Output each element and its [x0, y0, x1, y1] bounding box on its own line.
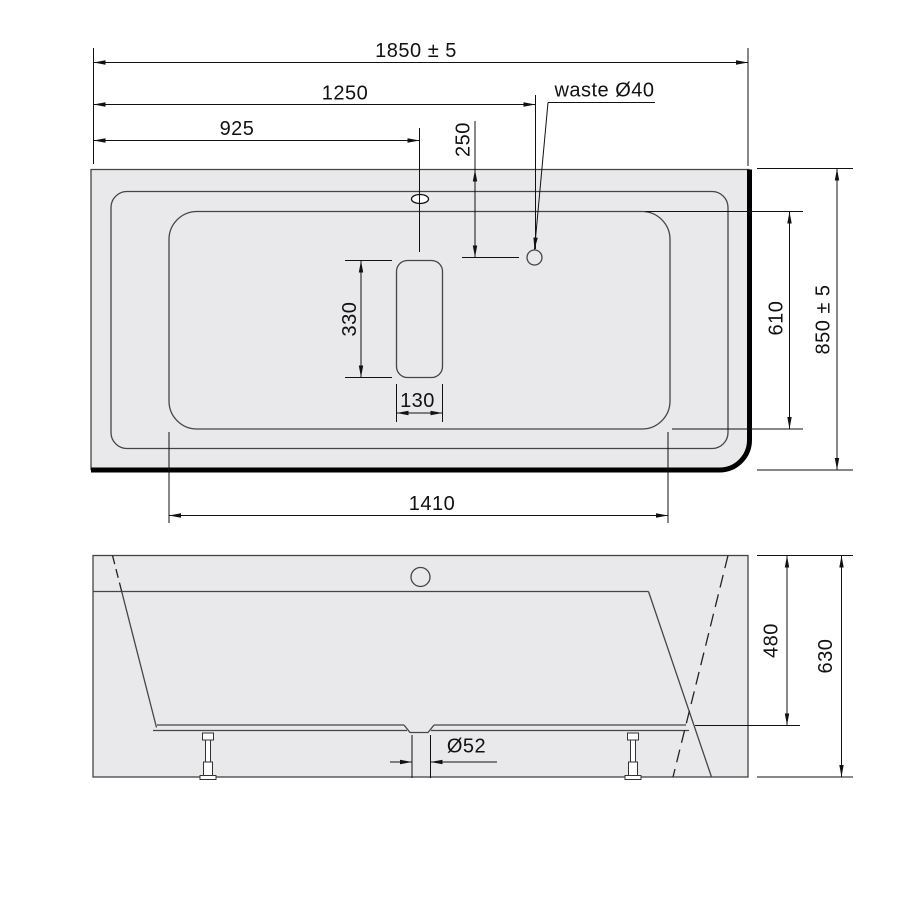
dim-text: 925 [220, 118, 255, 140]
front-outline [93, 556, 748, 778]
foot-stem [631, 740, 636, 762]
dim-text: 130 [400, 390, 435, 412]
dim-overall-height: 630 [757, 556, 853, 778]
dim-text: 610 [766, 301, 788, 336]
tub-fill [91, 170, 750, 471]
waste-label: waste Ø40 [553, 80, 654, 102]
foot-base-plate [625, 776, 641, 780]
dim-text: Ø52 [447, 736, 486, 758]
foot-stem [206, 740, 211, 762]
dim-text: 330 [339, 302, 361, 337]
front-body [93, 556, 748, 780]
drawing-canvas: 1850 ± 5 1250 925 250 waste Ø40 [0, 0, 900, 900]
drawing-page: 1850 ± 5 1250 925 250 waste Ø40 [0, 0, 900, 900]
dim-text: 630 [815, 639, 837, 674]
dim-text: 850 ± 5 [813, 284, 835, 354]
top-view: 1850 ± 5 1250 925 250 waste Ø40 [91, 40, 853, 523]
front-view: Ø52 480 630 [93, 556, 853, 780]
foot-mount-block [203, 733, 214, 740]
dim-text: 1410 [409, 493, 456, 515]
foot-lower-block [629, 762, 638, 776]
tub-body [91, 170, 750, 471]
foot-base-plate [200, 776, 216, 780]
foot-lower-block [204, 762, 213, 776]
dim-text: 1850 ± 5 [375, 40, 457, 62]
foot-mount-block [628, 733, 639, 740]
dim-text: 480 [761, 623, 783, 658]
dim-text: 1250 [322, 83, 369, 105]
dim-text: 250 [453, 122, 475, 157]
